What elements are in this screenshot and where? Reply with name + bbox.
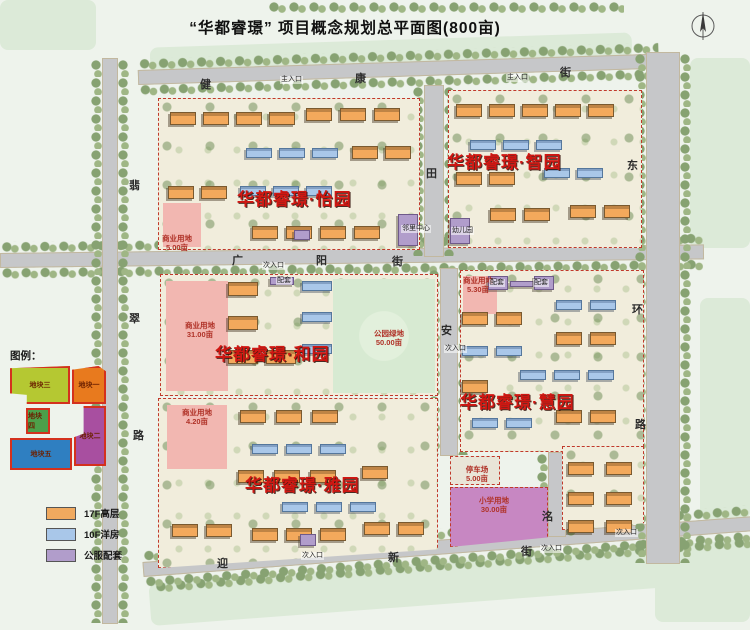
street-name-char: 洺 (542, 512, 553, 523)
district-label: 华都睿璟·智园 (447, 148, 562, 173)
street-name-char: 田 (426, 169, 437, 180)
street-name-char: 安 (441, 326, 452, 337)
street-name-char: 路 (635, 420, 646, 431)
site-plan: “华都睿璟” 项目概念规划总平面图(800亩) 图例： 地块三 地块一 地块四 … (0, 0, 750, 630)
street-name-char: 迎 (217, 559, 228, 570)
district-label: 华都睿璟·雅园 (245, 471, 360, 496)
map-marker: 次入口 (301, 552, 324, 560)
map-marker: 配套 (489, 279, 505, 287)
street-name-char: 路 (133, 431, 144, 442)
street-name-char: 街 (521, 547, 532, 558)
street-name-char: 翠 (129, 314, 140, 325)
map-marker: 次入口 (444, 345, 467, 353)
map-marker: 主入口 (280, 76, 303, 84)
map-marker: 次入口 (262, 262, 285, 270)
parcel-label: 商业用地5.00亩 (162, 234, 192, 253)
street-name-char: 广 (232, 256, 243, 267)
street-name-char: 阳 (316, 256, 327, 267)
street-name-char: 东 (627, 161, 638, 172)
parcel-label: 停车场5.00亩 (466, 465, 489, 484)
map-marker: 次入口 (615, 529, 638, 537)
map-marker: 邻里中心 (401, 225, 431, 233)
map-marker: 配套 (533, 279, 549, 287)
district-label: 华都睿璟·怡园 (237, 185, 352, 210)
map-marker: 配套 (276, 277, 292, 285)
district-label: 华都睿璟·和园 (215, 340, 330, 365)
street-name-char: 康 (355, 74, 366, 85)
street-name-char: 新 (388, 553, 399, 564)
labels-layer: 健康街广阳街迎新街翡翠路东环路田安洺华都睿璟·怡园华都睿璟·智园华都睿璟·和园华… (0, 0, 750, 630)
map-marker: 幼儿园 (451, 227, 474, 235)
street-name-char: 街 (392, 257, 403, 268)
map-marker: 次入口 (540, 545, 563, 553)
street-name-char: 翡 (129, 181, 140, 192)
parcel-label: 商业用地31.00亩 (185, 321, 215, 340)
map-marker: 主入口 (506, 74, 529, 82)
parcel-label: 公园绿地50.00亩 (374, 329, 404, 348)
parcel-label: 小学用地30.00亩 (479, 496, 509, 515)
street-name-char: 环 (632, 305, 643, 316)
street-name-char: 街 (560, 68, 571, 79)
street-name-char: 健 (200, 80, 211, 91)
parcel-label: 商业用地4.20亩 (182, 408, 212, 427)
district-label: 华都睿璟·慧园 (460, 388, 575, 413)
